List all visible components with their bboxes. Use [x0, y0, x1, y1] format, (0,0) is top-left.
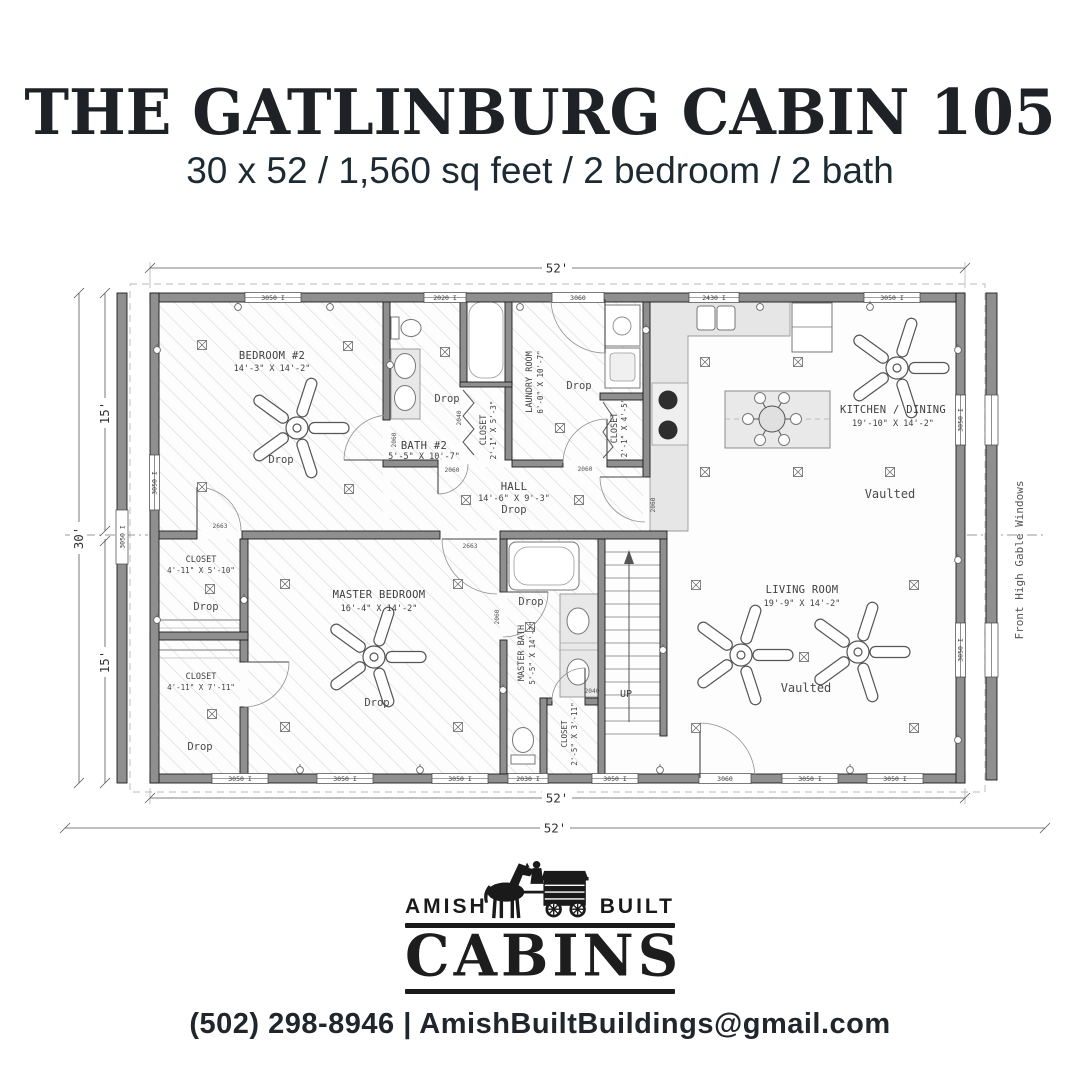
brand-logo: AMISH — [405, 853, 675, 994]
room-name-closet2: CLOSET — [186, 672, 217, 682]
window-label: 2030 I — [516, 775, 540, 783]
window-label: 3050 I — [119, 525, 127, 549]
window-label: 2430 I — [702, 294, 726, 302]
sink — [567, 608, 589, 634]
ceiling-note: Drop — [501, 504, 526, 516]
horse-and-wagon-icon — [475, 853, 605, 923]
room-size-master: 16'-4" X 14'-2" — [341, 604, 418, 614]
ceiling-note: Drop — [193, 601, 218, 613]
dim-depth-lower: 15' — [97, 651, 112, 674]
window-label: 3050 I — [151, 471, 159, 495]
window-label: 3050 I — [228, 775, 252, 783]
dim-width-overall: 52' — [544, 821, 567, 836]
toilet — [513, 728, 534, 753]
logo-word-cabins: CABINS — [405, 927, 675, 985]
door-tag: 2060 — [494, 609, 501, 624]
window-label: 3050 I — [883, 775, 907, 783]
room-name-master-bath: MASTER BATH — [517, 625, 527, 681]
door-tag: 2040 — [585, 688, 600, 695]
room-name-laundry-closet: CLOSET — [610, 413, 620, 444]
door-tag: 2663 — [213, 523, 228, 530]
contact-info: (502) 298-8946 | AmishBuiltBuildings@gma… — [0, 1008, 1080, 1041]
window-label: 3050 I — [333, 775, 357, 783]
window-label: 3050 I — [798, 775, 822, 783]
room-name-master: MASTER BEDROOM — [333, 589, 426, 601]
bathtub — [464, 297, 508, 383]
door-tag: 2663 — [463, 543, 478, 550]
dim-depth-total: 30' — [71, 527, 86, 550]
door-tag: 2060 — [445, 467, 460, 474]
window-label: 3050 I — [261, 294, 285, 302]
window-label: 3050 I — [880, 294, 904, 302]
kitchen-sink — [697, 306, 715, 330]
side-note: Front High Gable Windows — [1013, 481, 1026, 640]
ceiling-note: Drop — [364, 697, 389, 709]
window-label: 3050 I — [957, 638, 965, 662]
ceiling-note: Drop — [518, 596, 543, 608]
ceiling-note: Drop — [434, 393, 459, 405]
washer — [605, 305, 640, 346]
room-name-laundry: LAUNDRY ROOM — [525, 351, 535, 412]
logo-divider-bottom — [405, 989, 675, 994]
room-size-stair-closet: 2'-5" X 3'-11" — [570, 702, 579, 765]
sink — [567, 659, 589, 685]
room-name-bath2-closet: CLOSET — [479, 415, 489, 446]
door-label: 3060 — [570, 294, 586, 302]
room-size-hall: 14'-6" X 9'-3" — [478, 494, 550, 504]
dim-width-top: 52' — [546, 261, 569, 276]
room-size-master-bath: 5'-5" X 14'-2" — [528, 621, 537, 684]
door-tag: 2040 — [456, 410, 463, 425]
ceiling-note: Drop — [566, 380, 591, 392]
door-tag: 2060 — [650, 497, 657, 512]
room-size-closet1: 4'-11" X 5'-10" — [167, 566, 235, 575]
room-name-closet1: CLOSET — [186, 555, 217, 565]
room-name-bath2: BATH #2 — [401, 440, 447, 452]
stairs-up-label: UP — [620, 689, 632, 700]
dim-width-bottom: 52' — [546, 791, 569, 806]
window-label: 2020 I — [433, 294, 457, 302]
door-label: 3060 — [717, 775, 733, 783]
room-size-laundry: 6'-0" X 10'-7" — [536, 350, 545, 413]
master-tub — [509, 542, 579, 590]
room-size-closet2: 4'-11" X 7'-11" — [167, 683, 235, 692]
ceiling-note: Drop — [268, 454, 293, 466]
room-name-living: LIVING ROOM — [766, 584, 839, 596]
room-name-bedroom2: BEDROOM #2 — [239, 350, 305, 362]
poster: THE GATLINBURG CABIN 105 30 x 52 / 1,560… — [0, 0, 1080, 1080]
logo-word-built: BUILT — [600, 895, 675, 919]
room-name-hall: HALL — [501, 481, 528, 493]
window-label: 3050 I — [957, 408, 965, 432]
room-size-kitchen: 19'-10" X 14'-2" — [852, 419, 934, 429]
room-name-kitchen: KITCHEN / DINING — [840, 404, 946, 416]
ceiling-note: Drop — [187, 741, 212, 753]
room-size-laundry-closet: 2'-1" X 4'-5" — [620, 399, 629, 458]
room-size-bath2-closet: 2'-1" X 5'-3" — [489, 401, 498, 460]
sink — [395, 386, 416, 411]
sink — [395, 354, 416, 379]
ceiling-note: Vaulted — [781, 681, 832, 695]
room-size-bath2: 5'-5" X 10'-7" — [388, 452, 460, 462]
laundry-fixtures — [605, 305, 640, 388]
room-name-stair-closet: CLOSET — [560, 720, 569, 748]
room-size-bedroom2: 14'-3" X 14'-2" — [234, 364, 311, 374]
room-size-living: 19'-9" X 14'-2" — [764, 599, 841, 609]
window-label: 3050 I — [448, 775, 472, 783]
door-tag: 2060 — [578, 466, 593, 473]
refrigerator — [792, 303, 832, 352]
dim-depth-upper: 15' — [97, 402, 112, 425]
door-tag: 2060 — [391, 432, 398, 447]
window-label: 3050 I — [603, 775, 627, 783]
ceiling-note: Vaulted — [865, 487, 916, 501]
toilet — [391, 317, 399, 339]
